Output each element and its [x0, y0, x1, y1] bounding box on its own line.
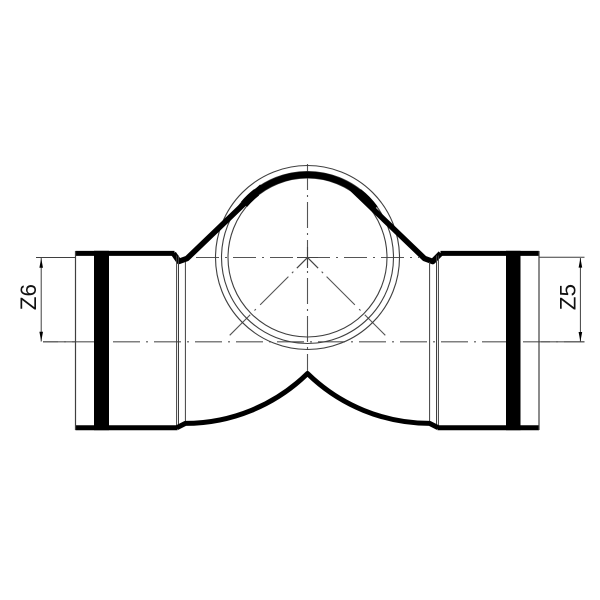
- svg-text:Z5: Z5: [555, 284, 580, 310]
- svg-text:Z6: Z6: [16, 284, 41, 310]
